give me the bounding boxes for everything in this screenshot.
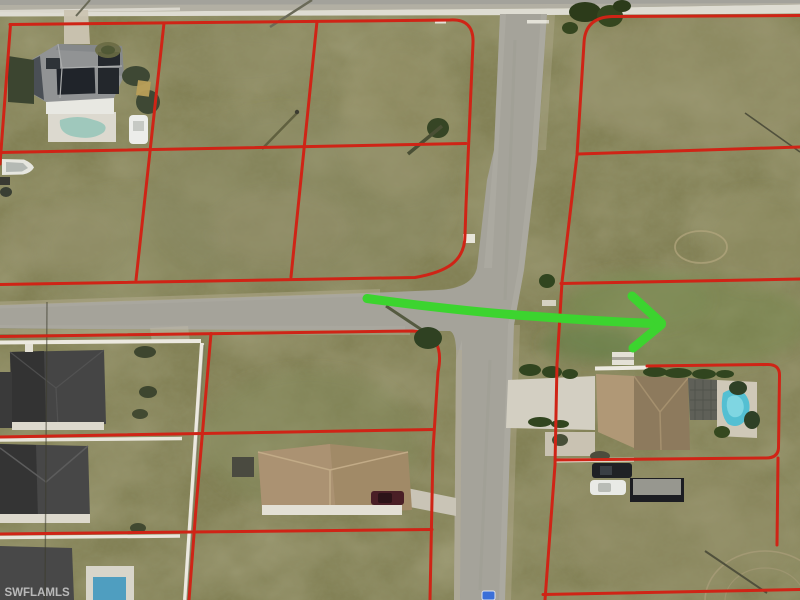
svg-text:SWFLAMLS: SWFLAMLS bbox=[5, 587, 70, 599]
